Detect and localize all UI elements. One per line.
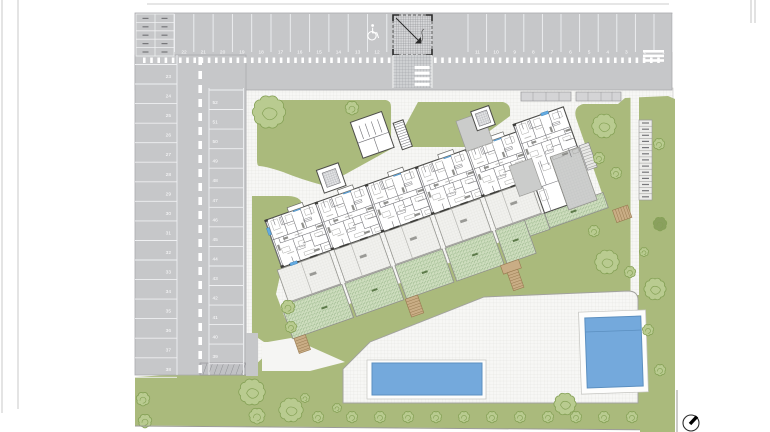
svg-text:3: 3 (625, 50, 628, 56)
svg-text:10: 10 (493, 50, 499, 56)
svg-text:42: 42 (213, 296, 219, 302)
svg-text:25: 25 (166, 113, 172, 119)
svg-text:6: 6 (569, 50, 572, 56)
svg-text:16: 16 (297, 50, 303, 56)
svg-text:48: 48 (213, 178, 219, 184)
svg-text:47: 47 (213, 198, 219, 204)
svg-text:17: 17 (278, 50, 284, 56)
svg-text:15: 15 (316, 50, 322, 56)
svg-text:49: 49 (213, 159, 219, 165)
svg-text:26: 26 (166, 133, 172, 139)
svg-text:32: 32 (166, 250, 172, 256)
svg-text:46: 46 (213, 217, 219, 223)
svg-text:45: 45 (213, 237, 219, 243)
svg-text:24: 24 (166, 94, 172, 100)
svg-text:18: 18 (259, 50, 265, 56)
svg-text:4: 4 (606, 50, 609, 56)
svg-text:8: 8 (532, 50, 535, 56)
svg-text:29: 29 (166, 191, 172, 197)
svg-text:31: 31 (166, 230, 172, 236)
svg-text:5: 5 (588, 50, 591, 56)
svg-text:23: 23 (166, 74, 172, 80)
svg-text:22: 22 (181, 50, 187, 56)
svg-text:9: 9 (513, 50, 516, 56)
svg-text:37: 37 (166, 348, 172, 354)
svg-text:41: 41 (213, 315, 219, 321)
svg-text:34: 34 (166, 289, 172, 295)
svg-text:33: 33 (166, 270, 172, 276)
svg-text:13: 13 (355, 50, 361, 56)
svg-text:12: 12 (374, 50, 380, 56)
svg-text:51: 51 (213, 120, 219, 126)
svg-text:21: 21 (201, 50, 207, 56)
svg-text:52: 52 (213, 100, 219, 106)
svg-text:44: 44 (213, 256, 219, 262)
svg-text:50: 50 (213, 139, 219, 145)
svg-text:35: 35 (166, 309, 172, 315)
svg-text:11: 11 (475, 50, 480, 56)
svg-text:19: 19 (239, 50, 245, 56)
svg-text:28: 28 (166, 172, 172, 178)
svg-text:30: 30 (166, 211, 172, 217)
svg-text:14: 14 (336, 50, 342, 56)
svg-text:39: 39 (213, 354, 219, 360)
svg-text:7: 7 (551, 50, 554, 56)
svg-text:40: 40 (213, 335, 219, 341)
svg-text:36: 36 (166, 328, 172, 334)
svg-text:38: 38 (166, 367, 172, 373)
svg-text:27: 27 (166, 152, 172, 158)
svg-text:20: 20 (220, 50, 226, 56)
svg-text:43: 43 (213, 276, 219, 282)
